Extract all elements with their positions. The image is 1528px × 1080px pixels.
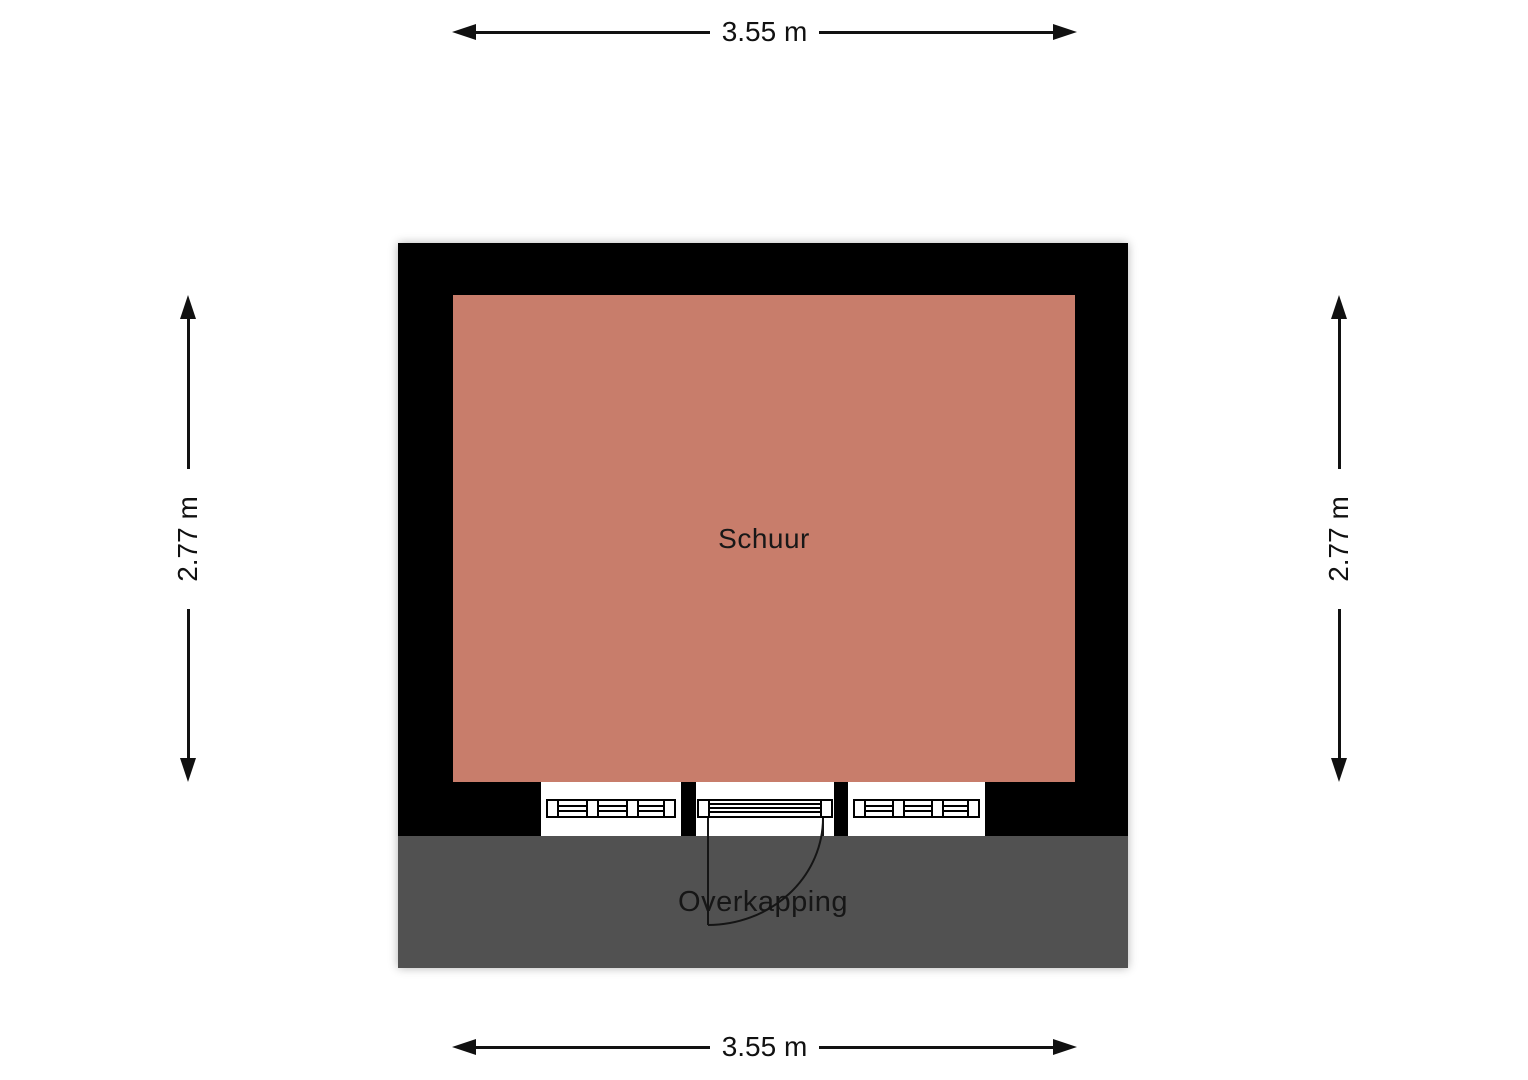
dimension-line [476,1046,710,1049]
window-mullion [931,799,944,818]
arrowhead-left-icon [452,24,476,40]
arrowhead-left-icon [452,1039,476,1055]
dimension-line [1338,609,1341,759]
window-opening-right [848,782,985,836]
door-symbol [697,799,833,818]
dimension-line [476,31,710,34]
door-panel-line [699,811,831,813]
window-pane-line [855,810,978,812]
window-mullion [626,799,639,818]
dimension-right: 2.77 m [1319,295,1359,782]
dimension-bottom: 3.55 m [452,1031,1077,1063]
floor-plan: Schuur [398,243,1128,968]
window-symbol-left [546,799,676,818]
window-frame-cap [663,799,676,818]
dimension-line [819,1046,1053,1049]
arrowhead-right-icon [1053,1039,1077,1055]
dimension-left-value: 2.77 m [172,496,204,582]
arrowhead-down-icon [180,758,196,782]
dimension-bottom-value: 3.55 m [710,1031,820,1063]
arrowhead-up-icon [180,295,196,319]
window-frame-cap [853,799,866,818]
window-mullion [892,799,905,818]
door-frame-cap [820,799,833,818]
window-frame-cap [967,799,980,818]
door-panel-line [699,803,831,805]
dimension-left-text-wrap: 2.77 m [145,469,231,609]
dimension-right-value: 2.77 m [1323,496,1355,582]
window-mullion [586,799,599,818]
room-floor-schuur: Schuur [453,295,1075,782]
canopy-area: Overkapping [398,836,1128,968]
arrowhead-down-icon [1331,758,1347,782]
dimension-top-value: 3.55 m [710,16,820,48]
window-pane-line [548,805,674,807]
dimension-left: 2.77 m [168,295,208,782]
window-opening-left [541,782,681,836]
dimension-line [187,609,190,759]
dimension-line [187,319,190,469]
window-pane-line [855,805,978,807]
door-panel-line [699,807,831,809]
door-opening [696,782,834,836]
dimension-top: 3.55 m [452,16,1077,48]
room-label: Schuur [718,523,810,555]
dimension-right-text-wrap: 2.77 m [1296,469,1382,609]
window-symbol-right [853,799,980,818]
door-frame-cap [697,799,710,818]
canopy-label: Overkapping [678,886,848,919]
dimension-line [1338,319,1341,469]
arrowhead-right-icon [1053,24,1077,40]
arrowhead-up-icon [1331,295,1347,319]
dimension-line [819,31,1053,34]
window-pane-line [548,810,674,812]
window-frame-cap [546,799,559,818]
